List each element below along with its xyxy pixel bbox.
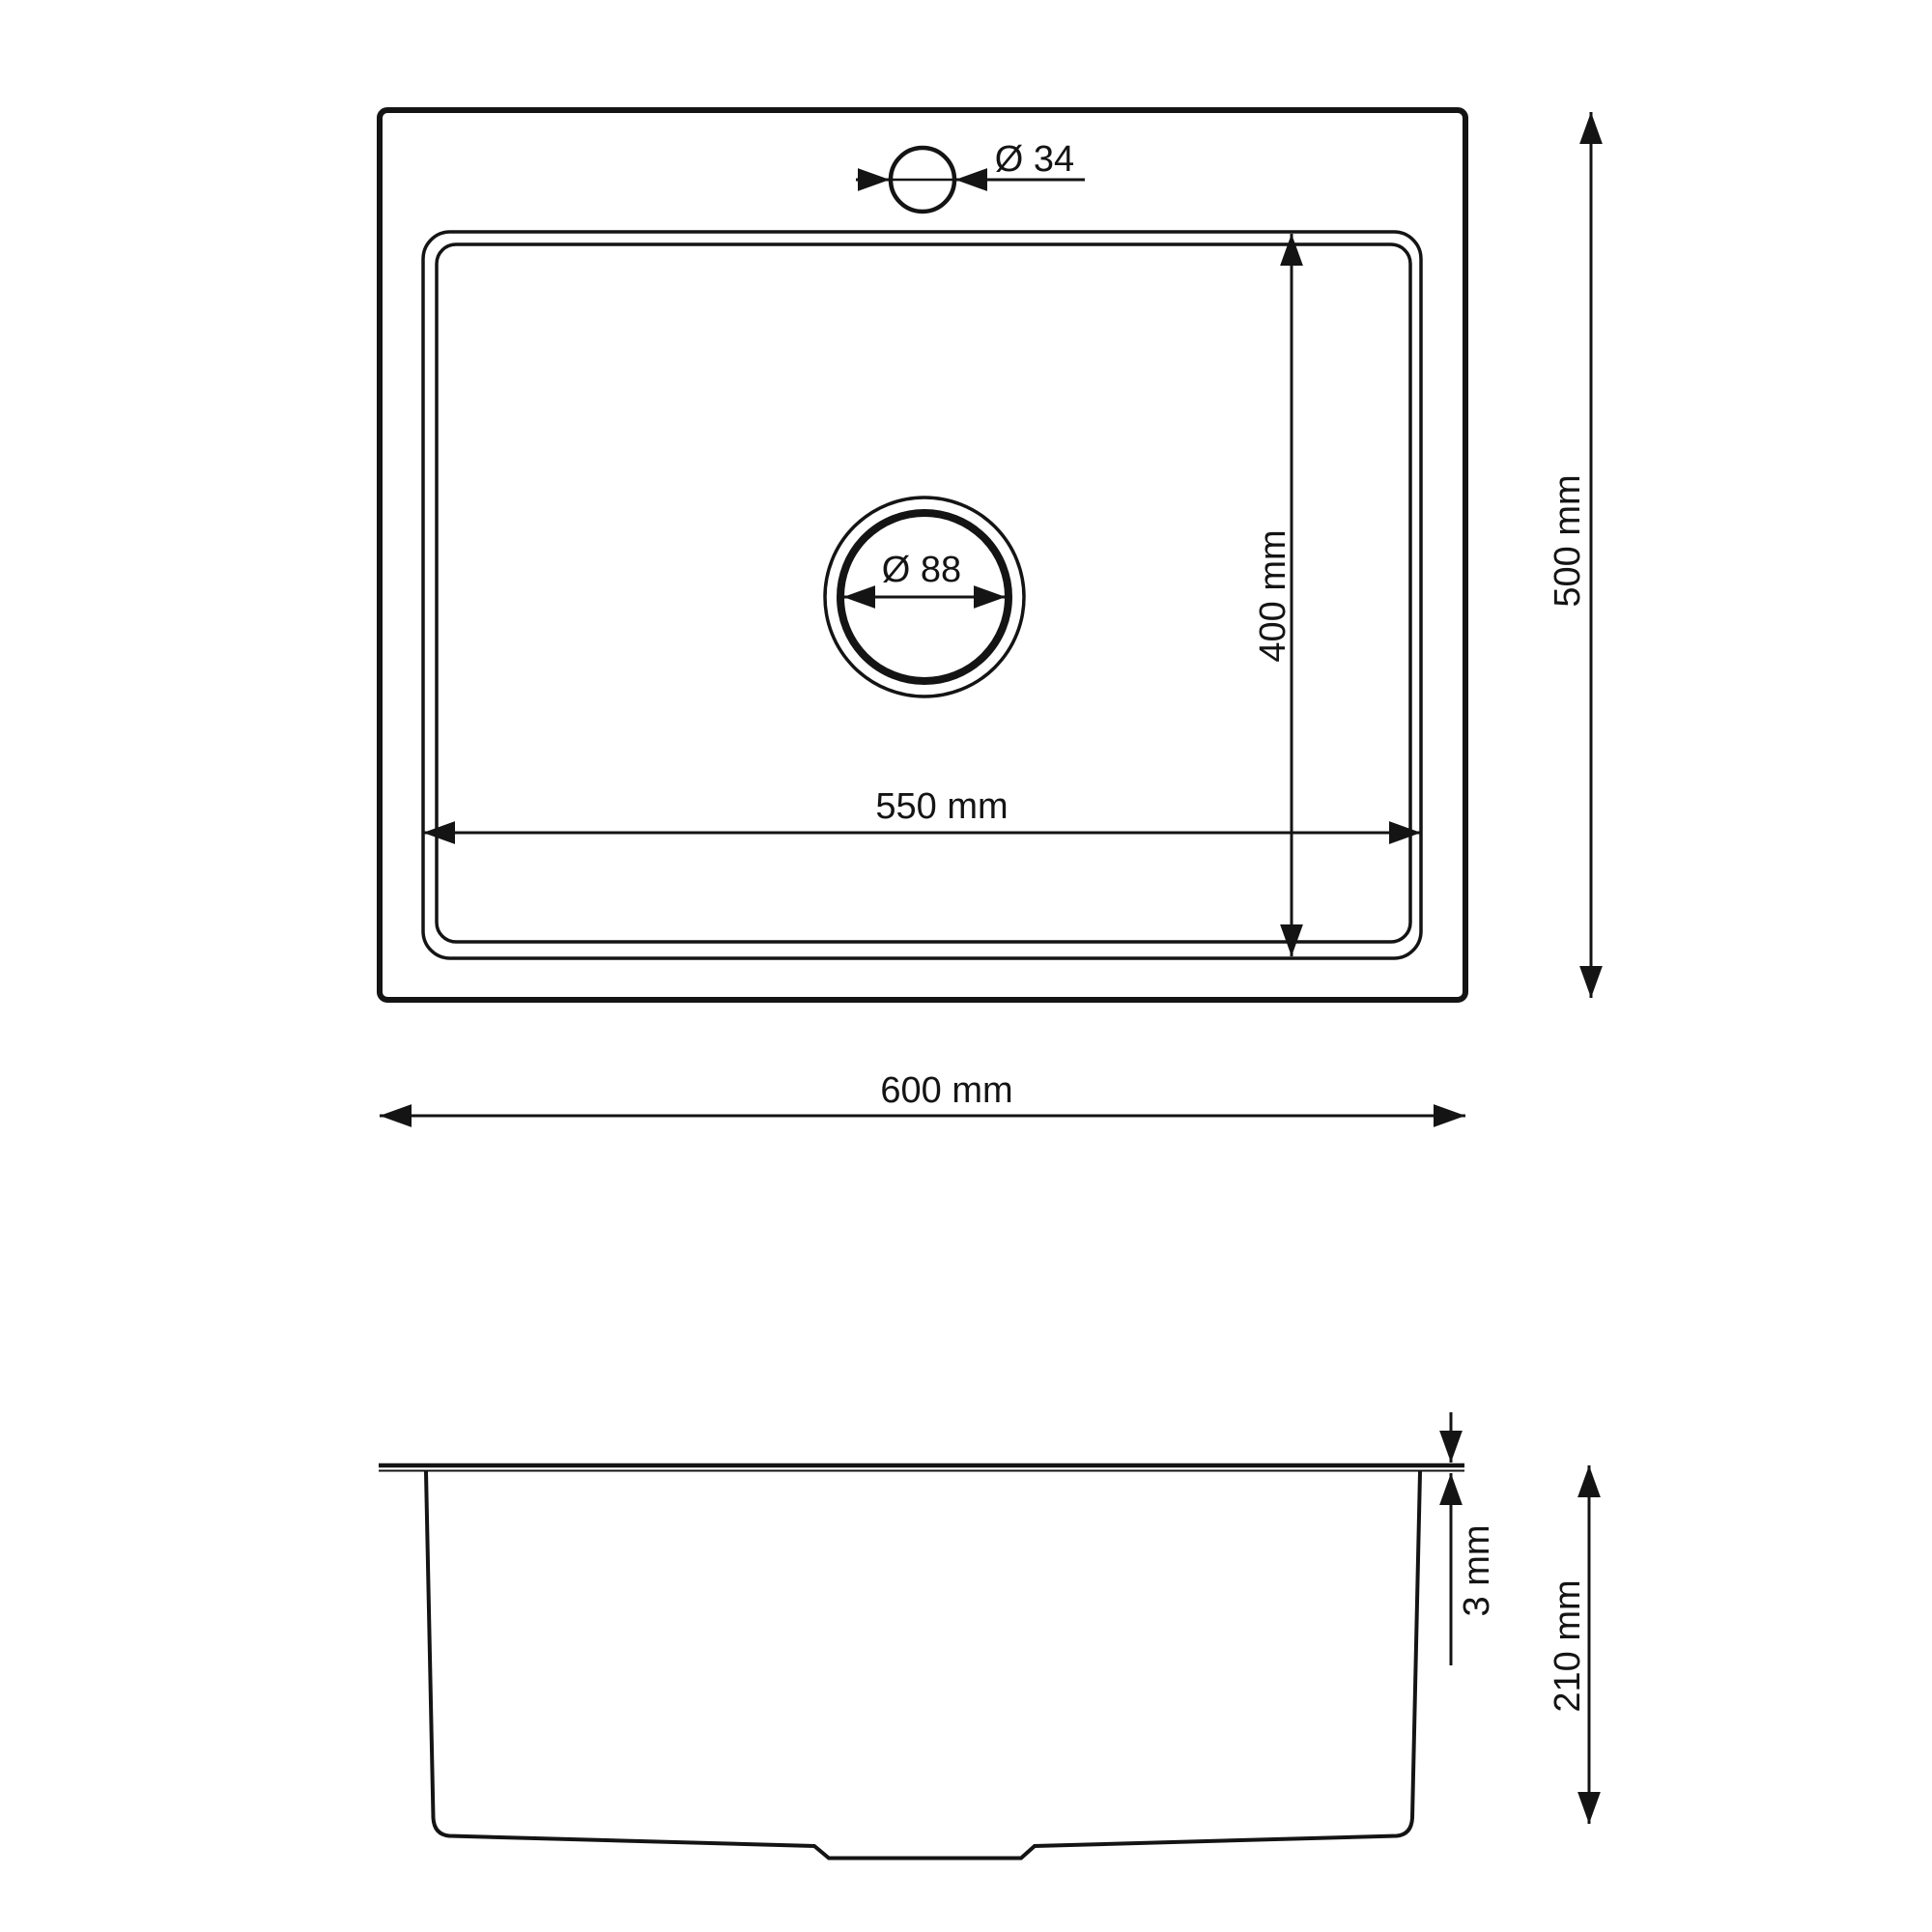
sink-technical-drawing-page: Ø 34 Ø 88 550 mm 400 mm 500 mm 600 mm <box>0 0 1932 1932</box>
dim-label-overall-depth: 500 mm <box>1548 474 1588 607</box>
bowl-profile <box>426 1472 1420 1859</box>
top-view: Ø 34 Ø 88 550 mm 400 mm 500 mm 600 mm <box>380 110 1591 1116</box>
dim-label-rim-thickness: 3 mm <box>1457 1525 1497 1617</box>
dim-label-drain-diameter: Ø 88 <box>882 550 961 590</box>
dim-label-bowl-depth: 400 mm <box>1253 529 1293 662</box>
dim-label-bowl-height: 210 mm <box>1548 1579 1588 1712</box>
dim-label-bowl-width: 550 mm <box>875 786 1008 827</box>
dim-label-faucet-diameter: Ø 34 <box>995 139 1074 180</box>
sink-technical-drawing: Ø 34 Ø 88 550 mm 400 mm 500 mm 600 mm <box>0 0 1932 1932</box>
dim-label-overall-width: 600 mm <box>880 1070 1012 1111</box>
side-view: 3 mm 210 mm <box>379 1412 1589 1859</box>
